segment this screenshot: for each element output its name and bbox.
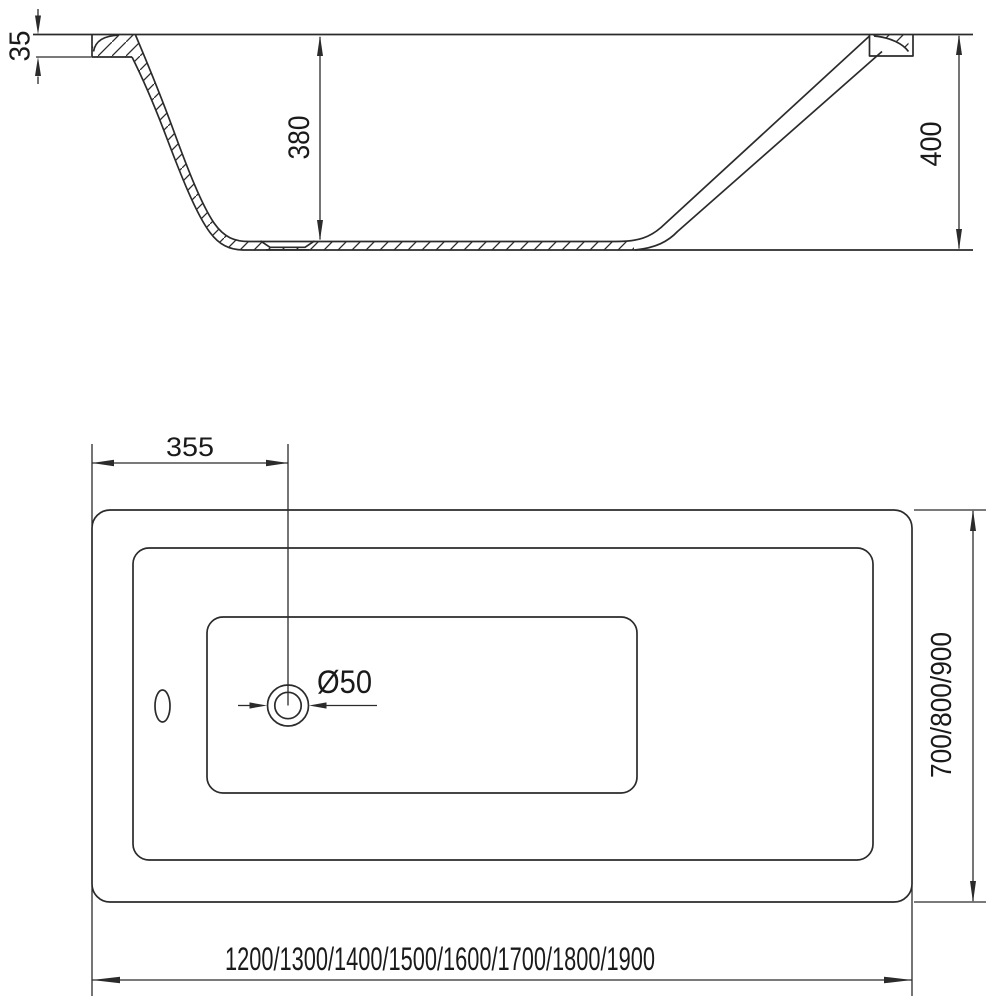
arrowhead-left xyxy=(309,702,327,708)
drain-diameter-label: Ø50 xyxy=(317,664,372,700)
arrowhead-up xyxy=(956,35,962,56)
arrowhead-down xyxy=(956,229,962,250)
arrowhead-right xyxy=(884,977,912,984)
height-label: 400 xyxy=(915,122,948,167)
dim-rim-height: 35 xyxy=(5,9,92,84)
depth-label: 380 xyxy=(283,116,316,160)
right-lip-hatch-area xyxy=(870,35,909,52)
overflow-hole xyxy=(155,690,170,722)
tub-rim-inner-edge xyxy=(133,548,873,860)
dim-depth: 380 xyxy=(283,36,323,241)
arrowhead-right xyxy=(266,460,288,467)
arrowhead-down xyxy=(970,881,976,903)
drain-offset-label: 355 xyxy=(166,432,214,462)
arrowhead-left xyxy=(92,460,114,467)
inner-wall-and-slope-line xyxy=(136,35,870,242)
slope-outer-line xyxy=(635,52,882,251)
dim-drain-offset: 355 xyxy=(92,432,288,526)
arrowhead-up xyxy=(970,510,976,532)
rim-height-label: 35 xyxy=(5,31,37,62)
outer-wall-and-base-line xyxy=(132,57,973,250)
arrowhead-right xyxy=(250,702,268,708)
tub-outer-edge xyxy=(92,510,912,902)
dim-height: 400 xyxy=(915,35,962,250)
drawing-page: 35 380 400 355 xyxy=(0,0,1000,1000)
arrowhead-up xyxy=(317,36,323,57)
arrowhead-down xyxy=(317,220,323,241)
dim-width-options: 700/800/900 xyxy=(914,510,986,903)
tub-floor-edge xyxy=(207,617,637,793)
arrowhead-left xyxy=(92,977,120,984)
wall-hatch-area xyxy=(92,35,634,251)
width-options-label: 700/800/900 xyxy=(926,632,958,778)
technical-drawing-canvas: 35 380 400 355 xyxy=(0,0,1000,1000)
dim-line xyxy=(36,9,91,84)
side-section-view: 35 380 400 xyxy=(5,9,974,250)
plan-view: 355 Ø50 700/800/900 1200/1300/1400/1500/… xyxy=(92,432,986,996)
length-options-label: 1200/1300/1400/1500/1600/1700/1800/1900 xyxy=(225,941,655,977)
